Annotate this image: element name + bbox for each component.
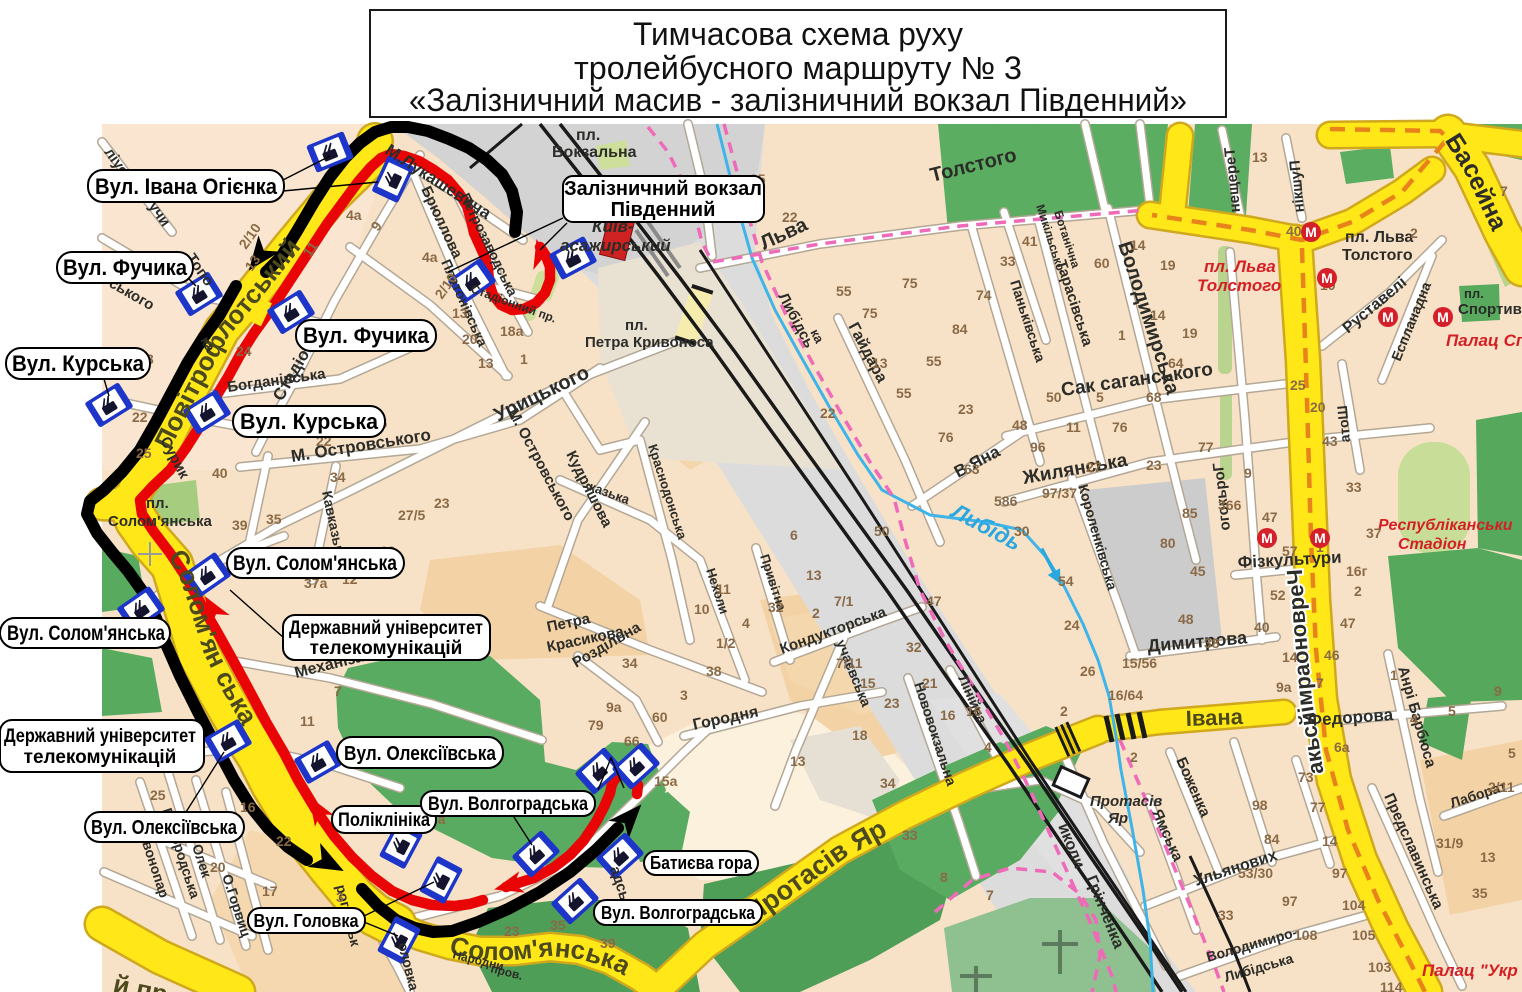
svg-text:Вокзальна: Вокзальна xyxy=(552,144,637,161)
svg-text:1: 1 xyxy=(1118,327,1126,343)
svg-text:Вул. Волгоградська: Вул. Волгоградська xyxy=(428,794,588,815)
svg-text:Державний університет: Державний університет xyxy=(4,726,196,747)
svg-text:76: 76 xyxy=(1112,419,1128,435)
svg-text:46: 46 xyxy=(1324,647,1340,663)
svg-text:4а: 4а xyxy=(422,249,438,265)
svg-text:3: 3 xyxy=(680,687,688,703)
svg-text:52: 52 xyxy=(1270,587,1286,603)
svg-text:16: 16 xyxy=(940,707,956,723)
svg-text:14: 14 xyxy=(1322,833,1338,849)
svg-text:40: 40 xyxy=(1286,223,1302,239)
svg-text:Поліклініка: Поліклініка xyxy=(338,810,430,831)
svg-text:18а: 18а xyxy=(500,323,524,339)
svg-text:104: 104 xyxy=(1342,897,1366,913)
svg-text:33: 33 xyxy=(1218,907,1234,923)
svg-text:5: 5 xyxy=(1508,745,1516,761)
svg-text:33: 33 xyxy=(1000,253,1016,269)
svg-text:Республіканськи: Республіканськи xyxy=(1378,517,1513,534)
svg-text:Палац "Укр: Палац "Укр xyxy=(1422,961,1518,980)
svg-text:32: 32 xyxy=(906,639,922,655)
svg-text:9: 9 xyxy=(1494,683,1502,699)
svg-text:«Залізничний масив - залізничн: «Залізничний масив - залізничний вокзал … xyxy=(409,82,1187,118)
svg-text:15/56: 15/56 xyxy=(1122,655,1157,671)
svg-text:37: 37 xyxy=(1366,525,1382,541)
svg-text:366: 366 xyxy=(1218,497,1242,513)
svg-text:22: 22 xyxy=(132,409,148,425)
svg-text:9а: 9а xyxy=(606,699,622,715)
svg-text:98: 98 xyxy=(1252,797,1268,813)
svg-text:38: 38 xyxy=(1204,635,1220,651)
svg-text:32: 32 xyxy=(768,599,784,615)
svg-text:30: 30 xyxy=(1014,523,1030,539)
svg-text:35: 35 xyxy=(1472,885,1488,901)
svg-text:11: 11 xyxy=(300,713,315,729)
svg-text:85: 85 xyxy=(1182,505,1198,521)
svg-text:Стадіон: Стадіон xyxy=(1398,536,1467,553)
svg-text:Вул. Курська: Вул. Курська xyxy=(240,409,379,434)
svg-text:11: 11 xyxy=(716,581,731,597)
svg-text:13: 13 xyxy=(452,305,468,321)
svg-text:75: 75 xyxy=(902,275,918,291)
svg-text:1/2: 1/2 xyxy=(716,635,736,651)
svg-text:пл. Льва: пл. Льва xyxy=(1345,229,1413,246)
svg-text:Тимчасова схема руху: Тимчасова схема руху xyxy=(633,16,963,52)
svg-text:3: 3 xyxy=(336,889,344,905)
svg-text:25: 25 xyxy=(136,445,152,461)
svg-text:7/1: 7/1 xyxy=(834,593,854,609)
svg-text:7: 7 xyxy=(1500,183,1508,199)
svg-text:пл. Льва: пл. Льва xyxy=(1204,257,1276,276)
svg-text:16: 16 xyxy=(240,799,256,815)
svg-text:41: 41 xyxy=(1022,233,1038,249)
svg-text:84: 84 xyxy=(952,321,968,337)
svg-text:40: 40 xyxy=(212,465,228,481)
svg-text:75: 75 xyxy=(862,305,878,321)
svg-text:38: 38 xyxy=(706,663,722,679)
svg-text:50: 50 xyxy=(1046,389,1062,405)
svg-text:13: 13 xyxy=(872,355,888,371)
svg-text:20: 20 xyxy=(210,859,226,875)
svg-text:64: 64 xyxy=(1168,355,1184,371)
svg-text:586: 586 xyxy=(994,493,1018,509)
svg-text:5: 5 xyxy=(1096,389,1104,405)
svg-text:6: 6 xyxy=(790,527,798,543)
svg-text:13: 13 xyxy=(1252,149,1268,165)
svg-text:1: 1 xyxy=(1390,667,1398,683)
svg-text:16г: 16г xyxy=(1346,563,1368,579)
svg-text:6а: 6а xyxy=(1334,739,1350,755)
svg-text:55: 55 xyxy=(836,283,852,299)
svg-text:14: 14 xyxy=(1130,237,1146,253)
svg-text:47: 47 xyxy=(1262,509,1278,525)
svg-text:24: 24 xyxy=(1064,617,1080,633)
svg-text:9а: 9а xyxy=(1276,679,1292,695)
svg-text:Івана: Івана xyxy=(1185,704,1244,731)
svg-text:19: 19 xyxy=(1182,325,1198,341)
svg-text:Вул. Фучика: Вул. Фучика xyxy=(63,255,188,280)
svg-text:2: 2 xyxy=(1410,225,1418,241)
svg-text:20: 20 xyxy=(462,331,478,347)
svg-text:Солом'янська: Солом'янська xyxy=(108,513,212,530)
svg-text:54: 54 xyxy=(1058,573,1074,589)
svg-text:13: 13 xyxy=(478,355,494,371)
svg-text:22: 22 xyxy=(276,833,292,849)
svg-text:Південний: Південний xyxy=(611,199,716,221)
svg-text:55: 55 xyxy=(896,385,912,401)
svg-text:23: 23 xyxy=(504,923,520,939)
svg-text:16/64: 16/64 xyxy=(1108,687,1143,703)
svg-text:27: 27 xyxy=(1086,459,1102,475)
svg-text:пл.: пл. xyxy=(576,127,600,144)
svg-text:Вул. Олексіївська: Вул. Олексіївська xyxy=(91,817,238,839)
svg-text:Вул. Олексіївська: Вул. Олексіївська xyxy=(344,743,497,765)
svg-text:19: 19 xyxy=(1160,257,1176,273)
svg-text:11: 11 xyxy=(1066,419,1081,435)
svg-text:74: 74 xyxy=(976,287,992,303)
svg-text:2: 2 xyxy=(812,605,820,621)
svg-text:22: 22 xyxy=(820,405,836,421)
svg-text:47: 47 xyxy=(926,593,942,609)
svg-text:Батиєва гора: Батиєва гора xyxy=(650,853,753,873)
svg-text:60: 60 xyxy=(1094,255,1110,271)
svg-text:7/11: 7/11 xyxy=(836,655,863,671)
svg-text:31/9: 31/9 xyxy=(1436,835,1463,851)
svg-text:2: 2 xyxy=(1354,583,1362,599)
svg-text:66: 66 xyxy=(624,733,640,749)
svg-text:77: 77 xyxy=(1198,439,1214,455)
svg-text:26: 26 xyxy=(1080,663,1096,679)
svg-text:108: 108 xyxy=(1294,927,1318,943)
svg-text:20: 20 xyxy=(1310,399,1326,415)
svg-text:пл.: пл. xyxy=(146,495,169,512)
svg-text:39: 39 xyxy=(232,517,248,533)
svg-text:80: 80 xyxy=(1160,535,1176,551)
svg-text:4: 4 xyxy=(1410,711,1418,727)
svg-text:17: 17 xyxy=(262,883,278,899)
svg-text:25: 25 xyxy=(1290,377,1306,393)
svg-text:68: 68 xyxy=(1146,389,1162,405)
svg-text:21: 21 xyxy=(922,675,938,691)
svg-text:7: 7 xyxy=(986,887,994,903)
svg-text:Державний університет: Державний університет xyxy=(289,618,483,639)
svg-text:27/5: 27/5 xyxy=(398,507,425,523)
svg-text:телекомунікацій: телекомунікацій xyxy=(24,747,177,768)
svg-text:15а: 15а xyxy=(654,773,678,789)
svg-text:39: 39 xyxy=(600,935,616,951)
svg-text:103: 103 xyxy=(1368,959,1392,975)
svg-text:16: 16 xyxy=(966,703,982,719)
svg-text:97: 97 xyxy=(1332,865,1348,881)
svg-text:7: 7 xyxy=(1316,675,1324,691)
svg-text:Вул. Івана Огієнка: Вул. Івана Огієнка xyxy=(95,174,278,199)
svg-text:23: 23 xyxy=(884,695,900,711)
svg-text:48: 48 xyxy=(1178,611,1194,627)
svg-text:13: 13 xyxy=(806,567,822,583)
svg-text:13: 13 xyxy=(790,753,806,769)
svg-text:34: 34 xyxy=(330,469,346,485)
svg-text:23: 23 xyxy=(958,401,974,417)
svg-text:105: 105 xyxy=(1352,927,1376,943)
svg-text:47: 47 xyxy=(1340,615,1356,631)
svg-text:50: 50 xyxy=(874,523,890,539)
svg-text:пл.: пл. xyxy=(625,317,648,334)
svg-text:5: 5 xyxy=(1448,703,1456,719)
svg-text:Вул. Солом'янська: Вул. Солом'янська xyxy=(7,622,165,645)
svg-text:97: 97 xyxy=(1282,893,1298,909)
svg-text:60: 60 xyxy=(652,709,668,725)
svg-text:24: 24 xyxy=(236,343,252,359)
svg-text:телекомунікацій: телекомунікацій xyxy=(310,638,463,659)
svg-text:Петра Кривоноса: Петра Кривоноса xyxy=(585,334,714,351)
svg-text:33: 33 xyxy=(1346,479,1362,495)
svg-text:2/11: 2/11 xyxy=(1488,779,1515,795)
svg-text:35: 35 xyxy=(266,511,282,527)
svg-text:Вул. Фучика: Вул. Фучика xyxy=(303,323,430,348)
svg-text:Вул. Волгоградська: Вул. Волгоградська xyxy=(601,903,756,923)
svg-text:Вул. Курська: Вул. Курська xyxy=(12,351,145,376)
svg-text:9: 9 xyxy=(1244,465,1252,481)
svg-text:8: 8 xyxy=(940,869,948,885)
svg-text:Залізничний вокзал: Залізничний вокзал xyxy=(564,178,762,200)
svg-text:7: 7 xyxy=(334,683,342,699)
svg-text:35: 35 xyxy=(550,917,566,933)
svg-text:асажирський: асажирський xyxy=(560,236,671,255)
svg-text:23: 23 xyxy=(434,495,450,511)
svg-text:34: 34 xyxy=(622,655,638,671)
svg-text:Толстого: Толстого xyxy=(1342,247,1413,264)
svg-text:22: 22 xyxy=(782,209,798,225)
svg-text:45: 45 xyxy=(1190,563,1206,579)
svg-text:43: 43 xyxy=(1322,433,1338,449)
svg-text:40: 40 xyxy=(1254,619,1270,635)
svg-text:Спортив: Спортив xyxy=(1458,301,1522,318)
svg-text:4а: 4а xyxy=(346,207,362,223)
svg-text:53/30: 53/30 xyxy=(1238,865,1273,881)
svg-text:96: 96 xyxy=(1030,439,1046,455)
svg-text:14: 14 xyxy=(1150,307,1166,323)
svg-text:73: 73 xyxy=(1298,769,1314,785)
svg-text:10: 10 xyxy=(694,601,710,617)
svg-text:55: 55 xyxy=(926,353,942,369)
svg-text:114: 114 xyxy=(1380,979,1403,992)
svg-text:25: 25 xyxy=(150,787,166,803)
svg-text:1: 1 xyxy=(520,351,528,367)
svg-text:14: 14 xyxy=(1282,649,1298,665)
svg-text:97/37: 97/37 xyxy=(1042,485,1077,501)
svg-text:18: 18 xyxy=(852,727,868,743)
svg-text:2: 2 xyxy=(1130,749,1138,765)
svg-text:84: 84 xyxy=(1264,831,1280,847)
svg-text:63: 63 xyxy=(964,461,980,477)
svg-text:77: 77 xyxy=(1310,799,1326,815)
svg-text:15: 15 xyxy=(860,675,876,691)
svg-text:пл.: пл. xyxy=(1464,286,1484,301)
svg-text:13: 13 xyxy=(1480,849,1496,865)
svg-text:4: 4 xyxy=(984,739,992,755)
svg-text:23: 23 xyxy=(1146,457,1162,473)
svg-text:79: 79 xyxy=(588,717,604,733)
svg-text:57: 57 xyxy=(1282,543,1298,559)
svg-text:тролейбусного маршруту № 3: тролейбусного маршруту № 3 xyxy=(574,50,1022,86)
svg-text:Толстого: Толстого xyxy=(1197,276,1281,295)
svg-text:Яр: Яр xyxy=(1107,810,1128,827)
svg-text:76: 76 xyxy=(938,429,954,445)
svg-text:2: 2 xyxy=(1060,703,1068,719)
svg-text:Вул. Солом'янська: Вул. Солом'янська xyxy=(233,552,397,575)
svg-text:Вул. Головка: Вул. Головка xyxy=(254,911,360,931)
svg-text:48: 48 xyxy=(1012,417,1028,433)
svg-text:Палац Спо: Палац Спо xyxy=(1446,331,1522,350)
svg-text:Протасів: Протасів xyxy=(1090,793,1162,810)
svg-text:34: 34 xyxy=(880,775,896,791)
svg-text:4: 4 xyxy=(742,615,750,631)
svg-text:33: 33 xyxy=(902,827,918,843)
